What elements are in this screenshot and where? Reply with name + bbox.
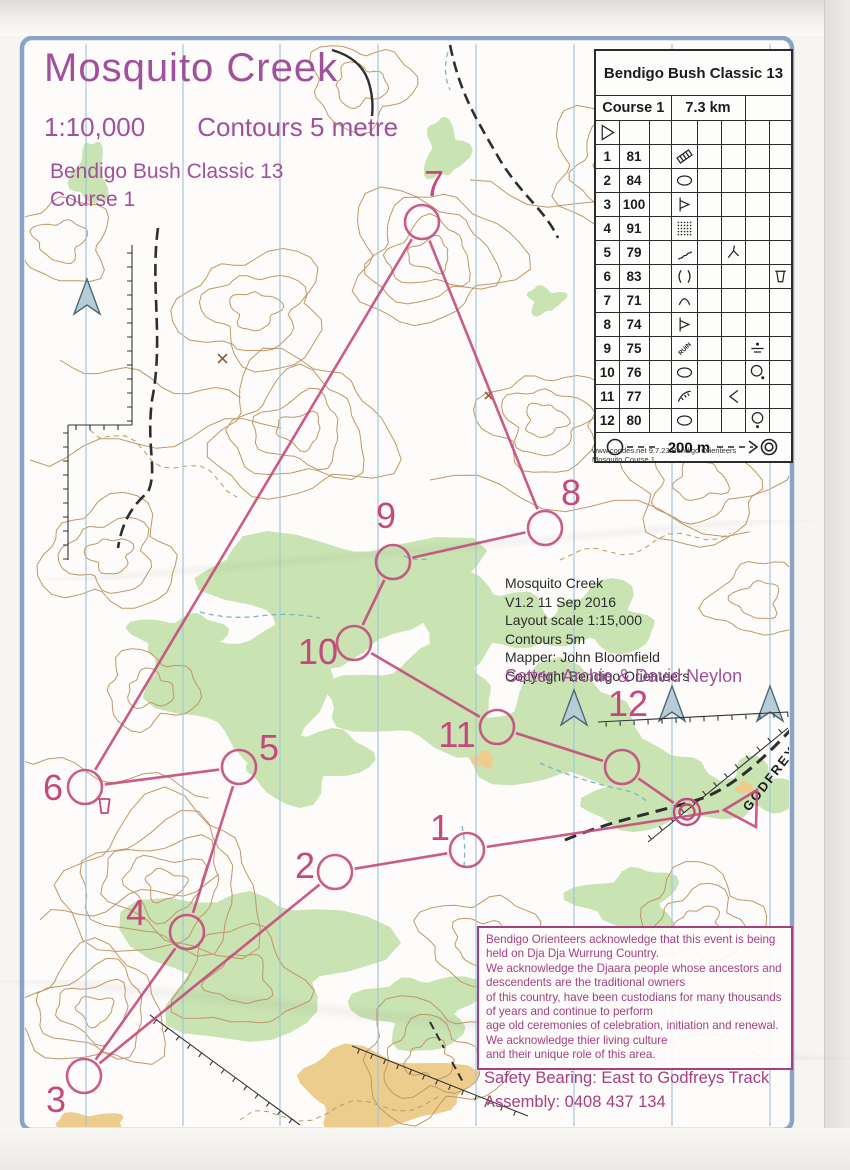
card-row: 683 (595, 265, 792, 289)
scanned-map-page: GODFREYS 123456789101112 Mosquito Creek … (0, 0, 850, 1170)
card-detail-cell (721, 169, 745, 193)
control-number: 1 (430, 807, 450, 848)
card-detail-cell (721, 217, 745, 241)
card-position-cell (745, 193, 769, 217)
card-extra-cell (769, 217, 792, 241)
map-scale: 1:10,000 (44, 112, 145, 143)
card-feature-cell (671, 313, 697, 337)
card-position-cell (745, 409, 769, 433)
card-feature-cell (671, 289, 697, 313)
credit-line: www.condes.net 9.7.23 Bendigo Orienteers (592, 446, 736, 455)
symbol-circledots-icon (747, 410, 768, 431)
card-detail-cell (721, 409, 745, 433)
card-control-code: 75 (619, 337, 649, 361)
symbol-hill-icon (674, 290, 695, 311)
symbol-start-icon (597, 122, 618, 143)
card-row: 491 (595, 217, 792, 241)
control-number: 2 (295, 845, 315, 886)
card-control-number: 3 (595, 193, 619, 217)
safety-bearing-block: Safety Bearing: East to Godfreys TrackAs… (484, 1066, 769, 1114)
card-control-code: 91 (619, 217, 649, 241)
card-row: 284 (595, 169, 792, 193)
card-control-code: 84 (619, 169, 649, 193)
card-extra-cell (769, 337, 792, 361)
card-control-code: 81 (619, 145, 649, 169)
card-extra-cell (769, 193, 792, 217)
paper-edge-top (0, 0, 850, 36)
card-position-cell (745, 289, 769, 313)
card-extra-cell (769, 241, 792, 265)
safety-line: Safety Bearing: East to Godfreys Track (484, 1066, 769, 1090)
card-extra-cell (769, 361, 792, 385)
symbol-junctiony-icon (723, 242, 744, 263)
card-control-number: 5 (595, 241, 619, 265)
card-position-cell (745, 169, 769, 193)
acknowledgement-line: We acknowledge thier living culture (486, 1034, 784, 1048)
condes-credits: www.condes.net 9.7.23 Bendigo Orienteers… (592, 446, 736, 464)
card-extra-cell (769, 145, 792, 169)
card-row: 1076 (595, 361, 792, 385)
info-line: Mapper: John Bloomfield (505, 648, 689, 667)
safety-line: Assembly: 0408 437 134 (484, 1090, 769, 1114)
card-title: Bendigo Bush Classic 13 (595, 50, 792, 96)
card-detail-cell (721, 313, 745, 337)
card-extra-cell (769, 169, 792, 193)
event-block: Bendigo Bush Classic 13 Course 1 (50, 158, 283, 214)
symbol-earthbank-icon (674, 386, 695, 407)
card-detail-cell (721, 361, 745, 385)
card-row: 874 (595, 313, 792, 337)
card-feature-cell (671, 217, 697, 241)
contour-interval: Contours 5 metre (197, 112, 398, 143)
card-position-cell (745, 217, 769, 241)
symbol-spur-icon (674, 314, 695, 335)
control-number: 4 (126, 892, 146, 933)
setter-credit: Setter: Archie & David Neylon (505, 666, 742, 687)
card-feature-cell: RUIN (671, 337, 697, 361)
control-description-card: Bendigo Bush Classic 13Course 17.3 km181… (594, 49, 793, 463)
symbol-depression-icon (674, 410, 695, 431)
course-name: Course 1 (50, 186, 283, 214)
svg-text:RUIN: RUIN (677, 341, 693, 357)
symbol-crossing-icon (674, 146, 695, 167)
card-feature-cell (671, 193, 697, 217)
card-position-cell (745, 385, 769, 409)
card-feature-cell (671, 385, 697, 409)
card-position-cell (745, 241, 769, 265)
symbol-dotline-icon (747, 338, 768, 359)
paper-edge-right (824, 0, 850, 1170)
map-title: Mosquito Creek (44, 46, 338, 91)
card-detail-cell (721, 385, 745, 409)
card-extra-cell (769, 409, 792, 433)
control-number: 6 (43, 767, 63, 808)
card-position-cell (745, 313, 769, 337)
card-feature-cell (671, 361, 697, 385)
card-control-code: 79 (619, 241, 649, 265)
card-position-cell (745, 265, 769, 289)
card-control-number: 9 (595, 337, 619, 361)
symbol-saddle-icon (674, 266, 695, 287)
card-control-number: 12 (595, 409, 619, 433)
control-number: 8 (561, 472, 581, 513)
card-control-code: 71 (619, 289, 649, 313)
control-number: 9 (376, 495, 396, 536)
card-course: Course 1 (595, 96, 671, 121)
info-line: Contours 5m (505, 630, 689, 649)
acknowledgement-line: Bendigo Orienteers acknowledge that this… (486, 933, 784, 947)
card-feature-cell (671, 409, 697, 433)
card-length: 7.3 km (671, 96, 745, 121)
symbol-circledotse-icon (747, 362, 768, 383)
card-row: 1177 (595, 385, 792, 409)
acknowledgement-line: We acknowledge the Djaara people whose a… (486, 962, 784, 976)
control-number: 3 (46, 1079, 66, 1120)
symbol-lessthan-icon (723, 386, 744, 407)
card-control-number: 7 (595, 289, 619, 313)
control-number: 5 (259, 727, 279, 768)
info-line: Mosquito Creek (505, 574, 689, 593)
card-feature-cell (671, 241, 697, 265)
card-control-number: 4 (595, 217, 619, 241)
event-name: Bendigo Bush Classic 13 (50, 158, 283, 186)
symbol-cup-icon (770, 266, 791, 287)
card-position-cell (745, 337, 769, 361)
card-extra-cell (769, 385, 792, 409)
card-position-cell (745, 361, 769, 385)
card-detail-cell (721, 289, 745, 313)
symbol-depression-icon (674, 362, 695, 383)
card-control-number: 1 (595, 145, 619, 169)
info-line: Layout scale 1:15,000 (505, 611, 689, 630)
card-control-number: 8 (595, 313, 619, 337)
acknowledgement-line: age old ceremonies of celebration, initi… (486, 1019, 784, 1033)
card-control-code: 100 (619, 193, 649, 217)
card-control-number: 11 (595, 385, 619, 409)
card-control-number: 2 (595, 169, 619, 193)
symbol-ruin-icon: RUIN (674, 338, 695, 359)
open-land-patch (0, 644, 20, 745)
acknowledgement-line: of years and continue to perform (486, 1005, 784, 1019)
card-row: 1280 (595, 409, 792, 433)
card-feature-cell (671, 145, 697, 169)
card-detail-cell (721, 193, 745, 217)
card-extra-cell (769, 313, 792, 337)
symbol-dots-icon (674, 218, 695, 239)
card-position-cell (745, 145, 769, 169)
acknowledgement-line: descendents are the traditional owners (486, 976, 784, 990)
paper-edge-bottom (0, 1128, 850, 1170)
card-control-code: 77 (619, 385, 649, 409)
card-control-code: 76 (619, 361, 649, 385)
scale-row: 1:10,000 Contours 5 metre (44, 112, 398, 143)
control-number: 11 (438, 714, 475, 755)
info-line: V1.2 11 Sep 2016 (505, 593, 689, 612)
card-row: 3100 (595, 193, 792, 217)
symbol-spur-icon (674, 194, 695, 215)
card-row: 771 (595, 289, 792, 313)
control-number: 7 (424, 163, 444, 204)
card-row: 975RUIN (595, 337, 792, 361)
card-detail-cell (721, 337, 745, 361)
card-detail-cell (721, 145, 745, 169)
acknowledgement-line: held on Dja Dja Wurrung Country. (486, 947, 784, 961)
card-feature-cell (671, 169, 697, 193)
card-control-number: 10 (595, 361, 619, 385)
card-control-code: 83 (619, 265, 649, 289)
card-row: 181 (595, 145, 792, 169)
symbol-depression-icon (674, 170, 695, 191)
card-control-code: 74 (619, 313, 649, 337)
control-number: 12 (608, 683, 648, 724)
card-detail-cell (721, 265, 745, 289)
acknowledgement-box: Bendigo Orienteers acknowledge that this… (477, 926, 793, 1070)
card-control-number: 6 (595, 265, 619, 289)
acknowledgement-line: of this country, have been custodians fo… (486, 991, 784, 1005)
card-row: 579 (595, 241, 792, 265)
card-control-code: 80 (619, 409, 649, 433)
symbol-gully-icon (674, 242, 695, 263)
card-feature-cell (671, 265, 697, 289)
credit-line: Mosquito Course 1 (592, 455, 736, 464)
card-extra-cell (769, 289, 792, 313)
acknowledgement-line: and their unique role of this area. (486, 1048, 784, 1062)
card-extra-cell (769, 265, 792, 289)
card-start-cell (595, 121, 619, 145)
card-detail-cell (721, 241, 745, 265)
control-number: 10 (298, 631, 338, 672)
